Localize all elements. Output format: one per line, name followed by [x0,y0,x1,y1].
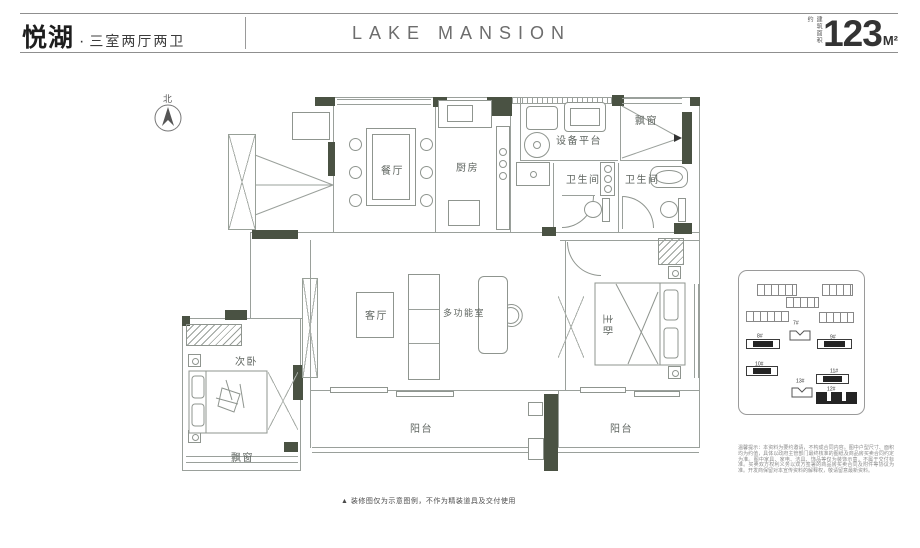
dining-chair [420,166,433,179]
room-label-master: 主卧 [601,314,616,337]
plan-segment [542,227,556,236]
plan-segment [499,160,507,168]
entry-cabinet [292,112,330,140]
plan-segment [618,163,619,232]
nightstand [668,366,681,379]
plan-segment [544,394,558,471]
keyplan-building-highlight [816,392,858,404]
sofa [408,274,440,380]
toilet [660,201,678,218]
kitchen-sink [447,105,473,122]
plan-segment [622,196,623,229]
keyplan-y-building [791,384,813,398]
keyplan-building-outline [822,284,853,296]
plan-segment [816,392,827,401]
balcony-cabinet [528,438,544,460]
master-door [567,242,601,276]
plan-segment [312,452,538,453]
plan-segment [499,148,507,156]
plan-segment [510,115,511,232]
plan-segment [225,310,247,320]
floor-plan-page: { "header": { "project_name": "悦湖", "sep… [0,0,920,548]
room-label-bathroom1: 卫生间 [566,171,601,186]
keyplan-building-outline [819,312,854,323]
toilet-tank [602,198,610,222]
stair-shaft [228,134,256,230]
plan-segment [620,97,621,160]
project-name: 悦湖 [22,18,74,54]
plan-segment [284,442,298,452]
plan-segment [499,172,507,180]
plan-segment [330,387,388,393]
plan-segment [533,141,541,149]
room-label-balcony-right: 阳台 [610,420,633,435]
page-title: 悦湖 · 三室两厅两卫 [22,18,185,54]
room-label-living: 客厅 [365,307,388,322]
dining-window [337,99,431,105]
keyplan-building-highlight [817,339,852,349]
keyplan-building-outline [757,284,797,296]
balcony-cabinet [528,402,543,416]
dining-chair [349,166,362,179]
plan-segment [558,452,699,453]
room-label-multifunction: 多功能室 [443,306,485,319]
master-window [694,284,699,378]
plan-segment [409,309,439,310]
washbasin [516,162,550,186]
desk-chair [498,300,528,330]
toilet [584,201,602,218]
entry-door-swing [252,147,338,233]
plan-segment [570,108,600,126]
plan-segment [435,107,436,232]
dining-chair [420,194,433,207]
plan-note: ▲ 装修图仅为示意图例，不作为精装道具及交付使用 [341,496,516,506]
toilet-tank [678,198,686,222]
north-arrow-icon [153,103,183,133]
dining-chair [349,194,362,207]
room-label-kitchen: 厨房 [456,159,479,174]
plan-segment [699,97,700,448]
keyplan-building-highlight [746,366,778,376]
keyplan-building-highlight [816,374,849,384]
title-separator: · [79,33,84,51]
keyplan-building-outline [786,297,819,308]
plan-segment [558,447,699,448]
plan-segment [520,160,618,161]
plan-segment [396,391,454,397]
kitchen-cabinet [448,200,480,226]
room-label-bay-top: 飘窗 [635,112,658,127]
plan-segment [182,470,301,471]
area-display: 建筑面积约 123 M² [805,16,898,49]
header-top-rule [20,13,898,14]
dining-chair [349,138,362,151]
plan-segment [634,391,680,397]
nightstand [668,266,681,279]
plan-segment [520,97,521,160]
keyplan-y-building [789,327,811,341]
room-label-dining: 餐厅 [381,162,404,177]
second-wardrobe [186,324,242,346]
plan-segment [315,97,335,106]
room-label-balcony-left: 阳台 [410,420,433,435]
brand-name: LAKE MANSION [352,23,571,44]
area-unit: M² [883,33,898,48]
plan-segment [604,175,612,183]
room-label-second: 次卧 [235,353,258,368]
washer [526,106,558,130]
plan-segment [604,185,612,193]
plan-segment [250,232,251,318]
master-door-swing [558,296,584,358]
room-label-bay-bottom: 飘窗 [231,449,254,464]
unit-type: 三室两厅两卫 [89,31,185,51]
room-label-equipment: 设备平台 [556,132,602,147]
keyplan-building-highlight [746,339,780,349]
plan-segment [816,401,857,404]
tv-cabinet [302,278,318,378]
room-label-bathroom2: 卫生间 [625,171,660,186]
plan-segment [604,165,612,173]
plan-segment [562,195,595,196]
second-bed [188,370,268,434]
keyplan-building-outline [746,311,789,322]
header-divider [245,17,246,49]
area-value: 123 [823,18,882,49]
dining-chair [420,138,433,151]
second-bedroom-door-swing [268,372,298,430]
plan-segment [674,223,692,234]
nightstand [188,354,201,367]
plan-segment [558,390,559,448]
area-label: 建筑面积约 [805,16,823,46]
keyplan-label-7: 7# [793,321,799,326]
disclaimer-text: 温馨提示：本资料为要约邀请，不构成合同内容。图中户型尺寸、面积均为约值，具体以政… [738,446,894,475]
bathroom2-door [622,196,654,228]
master-wardrobe [658,238,684,265]
plan-segment [580,387,626,393]
plan-segment [553,163,554,232]
plan-segment [409,343,439,344]
plan-segment [182,318,183,470]
site-key-plan: 7# 8# 9# 10# 11# 13# 12# [738,270,865,415]
plan-segment [312,447,538,448]
plan-segment [846,392,857,401]
plan-segment [690,97,700,106]
plan-segment [831,392,842,401]
